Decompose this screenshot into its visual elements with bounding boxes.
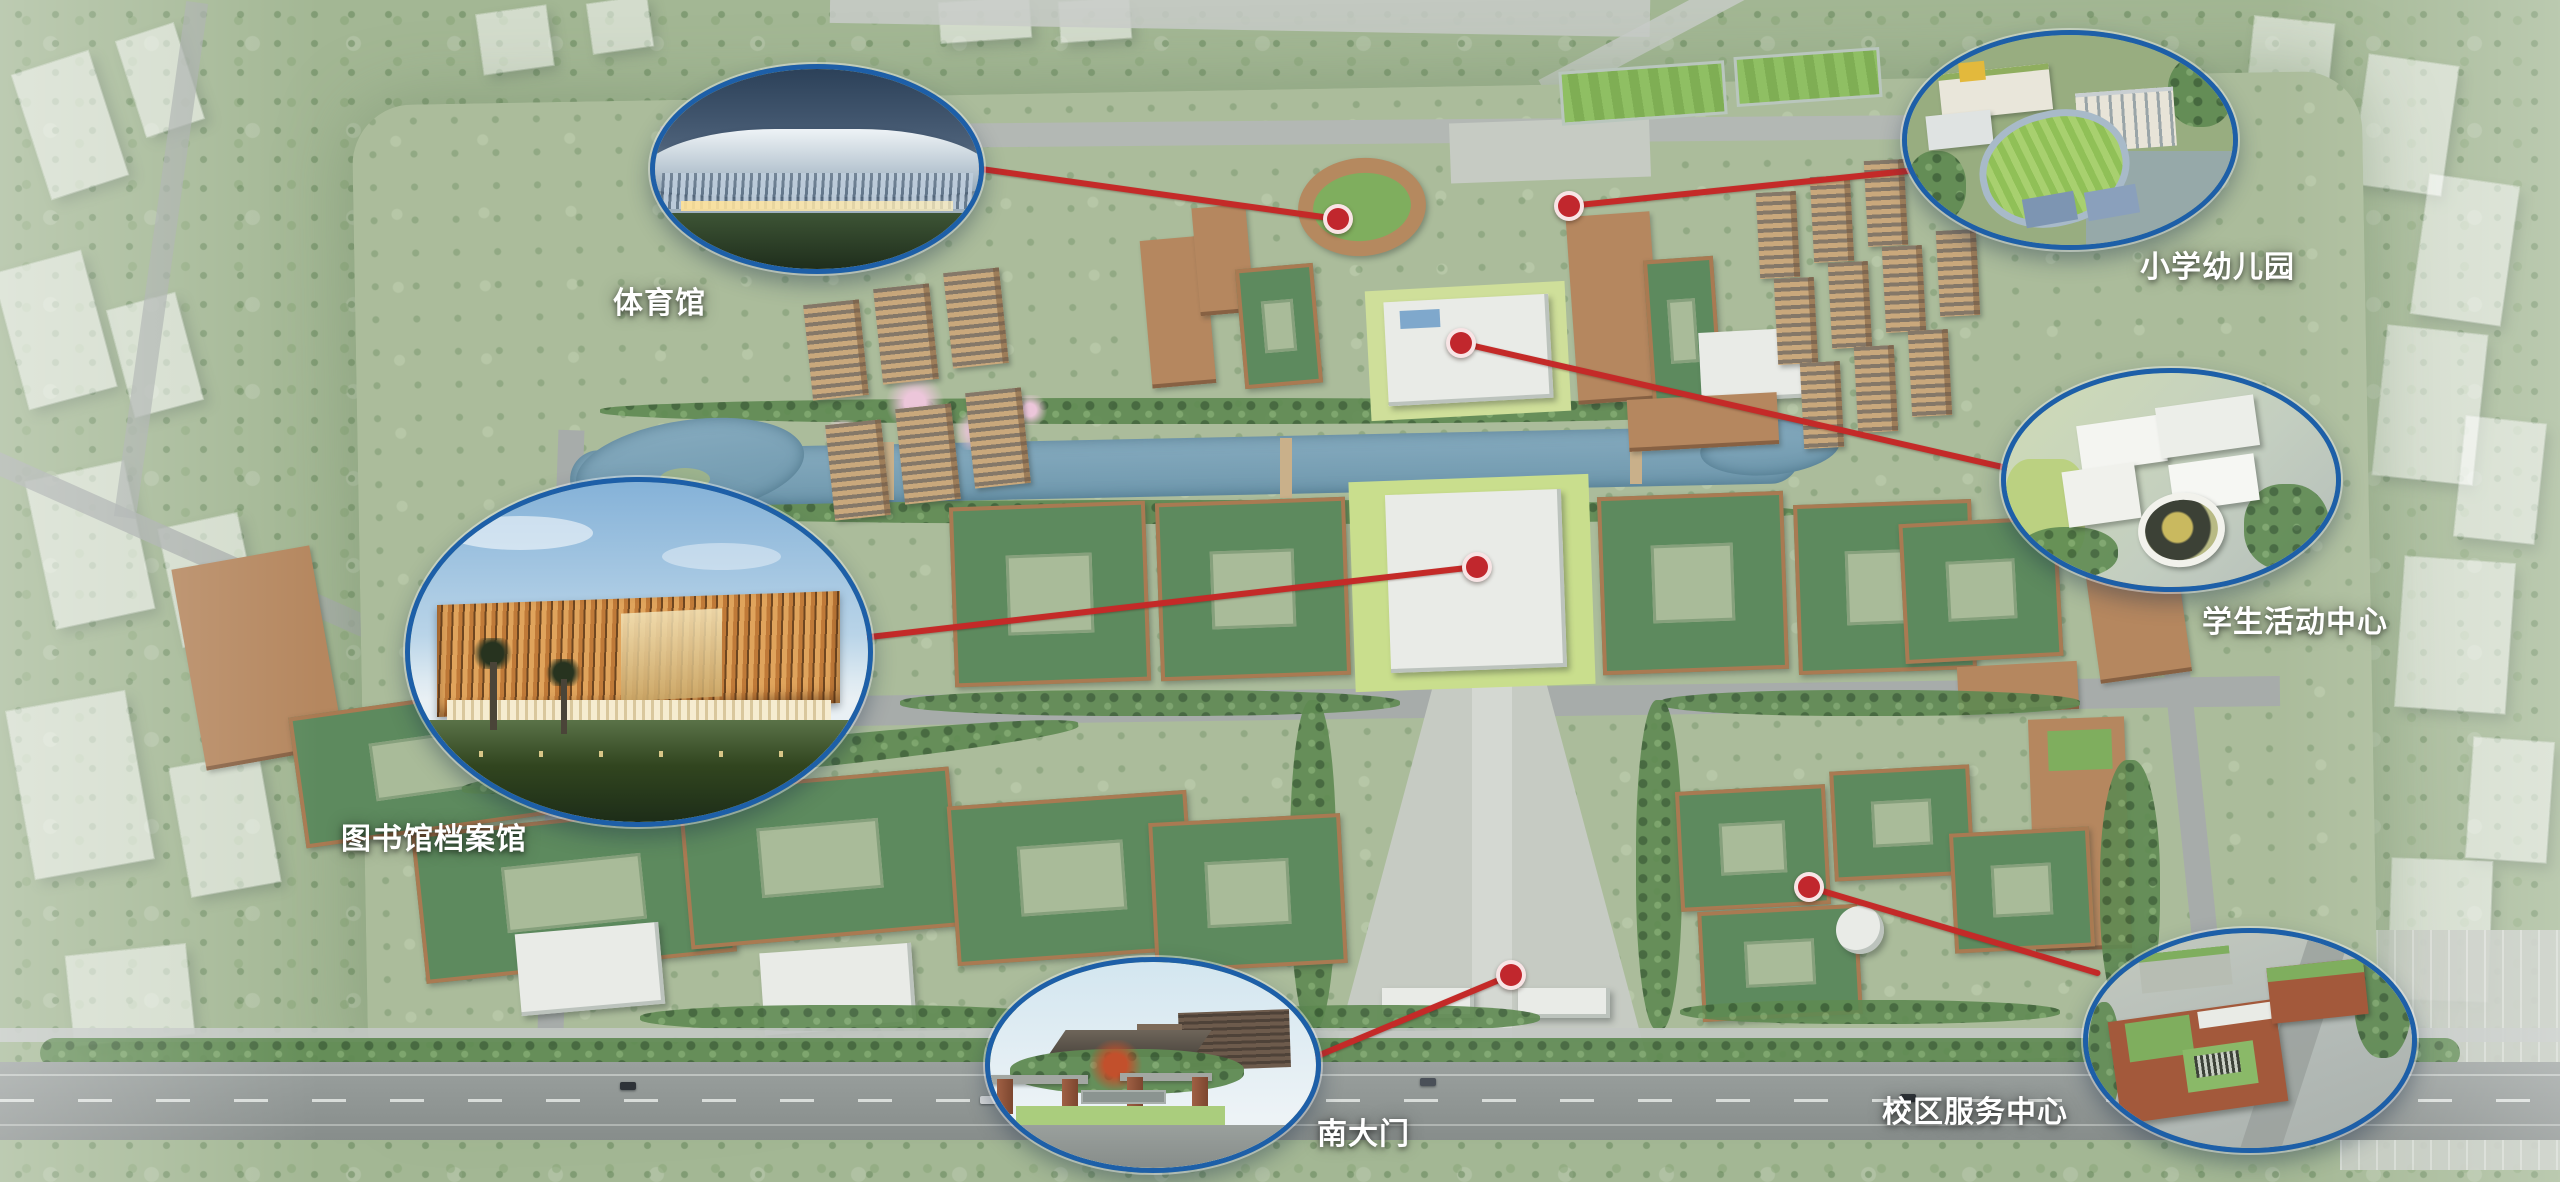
student-activity-center-callout <box>2001 368 2341 592</box>
name-wall <box>1081 1090 1166 1104</box>
residential-tower <box>1828 261 1872 349</box>
window-glow <box>681 201 953 211</box>
trees <box>2019 527 2118 578</box>
trees <box>1907 151 1966 222</box>
residential-tower <box>1774 277 1818 365</box>
tree-grove <box>1636 700 1682 1030</box>
library-archives-callout-image <box>410 482 868 822</box>
building-accent <box>1400 309 1441 329</box>
gymnasium-callout-image <box>655 69 979 269</box>
campus-aerial-map: 体育馆 小学幼儿园 学生活动中心 图书馆档案馆 南大门 校区服务中心 <box>0 0 2560 1182</box>
building-block <box>895 403 961 504</box>
building-block <box>803 299 869 400</box>
cloud <box>447 516 594 550</box>
academic-quad <box>1597 491 1789 675</box>
gymnasium-map-dot <box>1323 204 1353 234</box>
tree-grove <box>1680 1000 2060 1024</box>
primary-school-callout <box>1902 30 2238 250</box>
building-block <box>873 283 939 384</box>
car <box>1420 1078 1436 1086</box>
building-block <box>515 922 666 1016</box>
residential-tower <box>1882 245 1926 333</box>
lawn <box>655 213 979 269</box>
building-block <box>1148 813 1348 973</box>
primary-school-map-dot <box>1554 191 1584 221</box>
residential-tower <box>1908 329 1952 417</box>
road <box>990 1125 1316 1168</box>
gymnasium-callout <box>650 64 984 274</box>
campus-service-center-callout <box>2083 928 2417 1153</box>
sports-courts <box>1733 47 1882 107</box>
residential-tower <box>1810 175 1854 263</box>
campus-service-center-map-dot <box>1794 872 1824 902</box>
gymnasium-label: 体育馆 <box>613 278 706 322</box>
south-gate-map-dot <box>1496 960 1526 990</box>
gym-hall <box>1925 109 1993 149</box>
student-activity-center-label: 学生活动中心 <box>2202 597 2388 641</box>
student-activity-center-map-dot <box>1446 328 1476 358</box>
building-block <box>943 267 1009 368</box>
primary-school-label: 小学幼儿园 <box>2140 242 2295 286</box>
lawn <box>1016 1106 1225 1125</box>
campus-service-center-callout-image <box>2088 933 2412 1148</box>
lawn <box>410 720 868 822</box>
gate-pillar <box>997 1079 1013 1114</box>
library-archives-label: 图书馆档案馆 <box>341 814 527 858</box>
south-gate-callout <box>985 957 1321 1173</box>
building-block <box>965 387 1031 488</box>
academic-quad <box>949 501 1151 688</box>
student-activity-center-callout-image <box>2006 373 2336 587</box>
residential-tower <box>1800 361 1844 449</box>
building-block <box>1235 263 1323 389</box>
trees <box>2168 56 2233 127</box>
yellow-block <box>1958 61 1986 83</box>
glass-atrium <box>621 609 722 703</box>
path-lights <box>479 751 800 758</box>
campus-service-center-label: 校区服务中心 <box>1882 1087 2068 1131</box>
palm-trunk <box>561 679 567 733</box>
service-building-2 <box>2267 958 2369 1024</box>
palm-trunk <box>490 662 497 730</box>
green-roof <box>2047 729 2112 771</box>
tree-grove <box>1660 690 2080 716</box>
tree-grove <box>900 690 1400 716</box>
residential-tower <box>1756 191 1800 279</box>
south-gate-callout-image <box>990 962 1316 1168</box>
cylinder-building <box>1836 906 1884 954</box>
library-archives-callout <box>405 477 873 827</box>
library-archives-map-dot <box>1462 552 1492 582</box>
stadium-track <box>1294 153 1430 262</box>
stadium-infield <box>1310 169 1414 245</box>
car <box>620 1082 636 1090</box>
white-building <box>2062 462 2142 527</box>
residential-tower <box>1854 345 1898 433</box>
primary-school-callout-image <box>1907 35 2233 245</box>
sports-courts <box>1558 60 1727 125</box>
south-gate-label: 南大门 <box>1317 1109 1410 1153</box>
